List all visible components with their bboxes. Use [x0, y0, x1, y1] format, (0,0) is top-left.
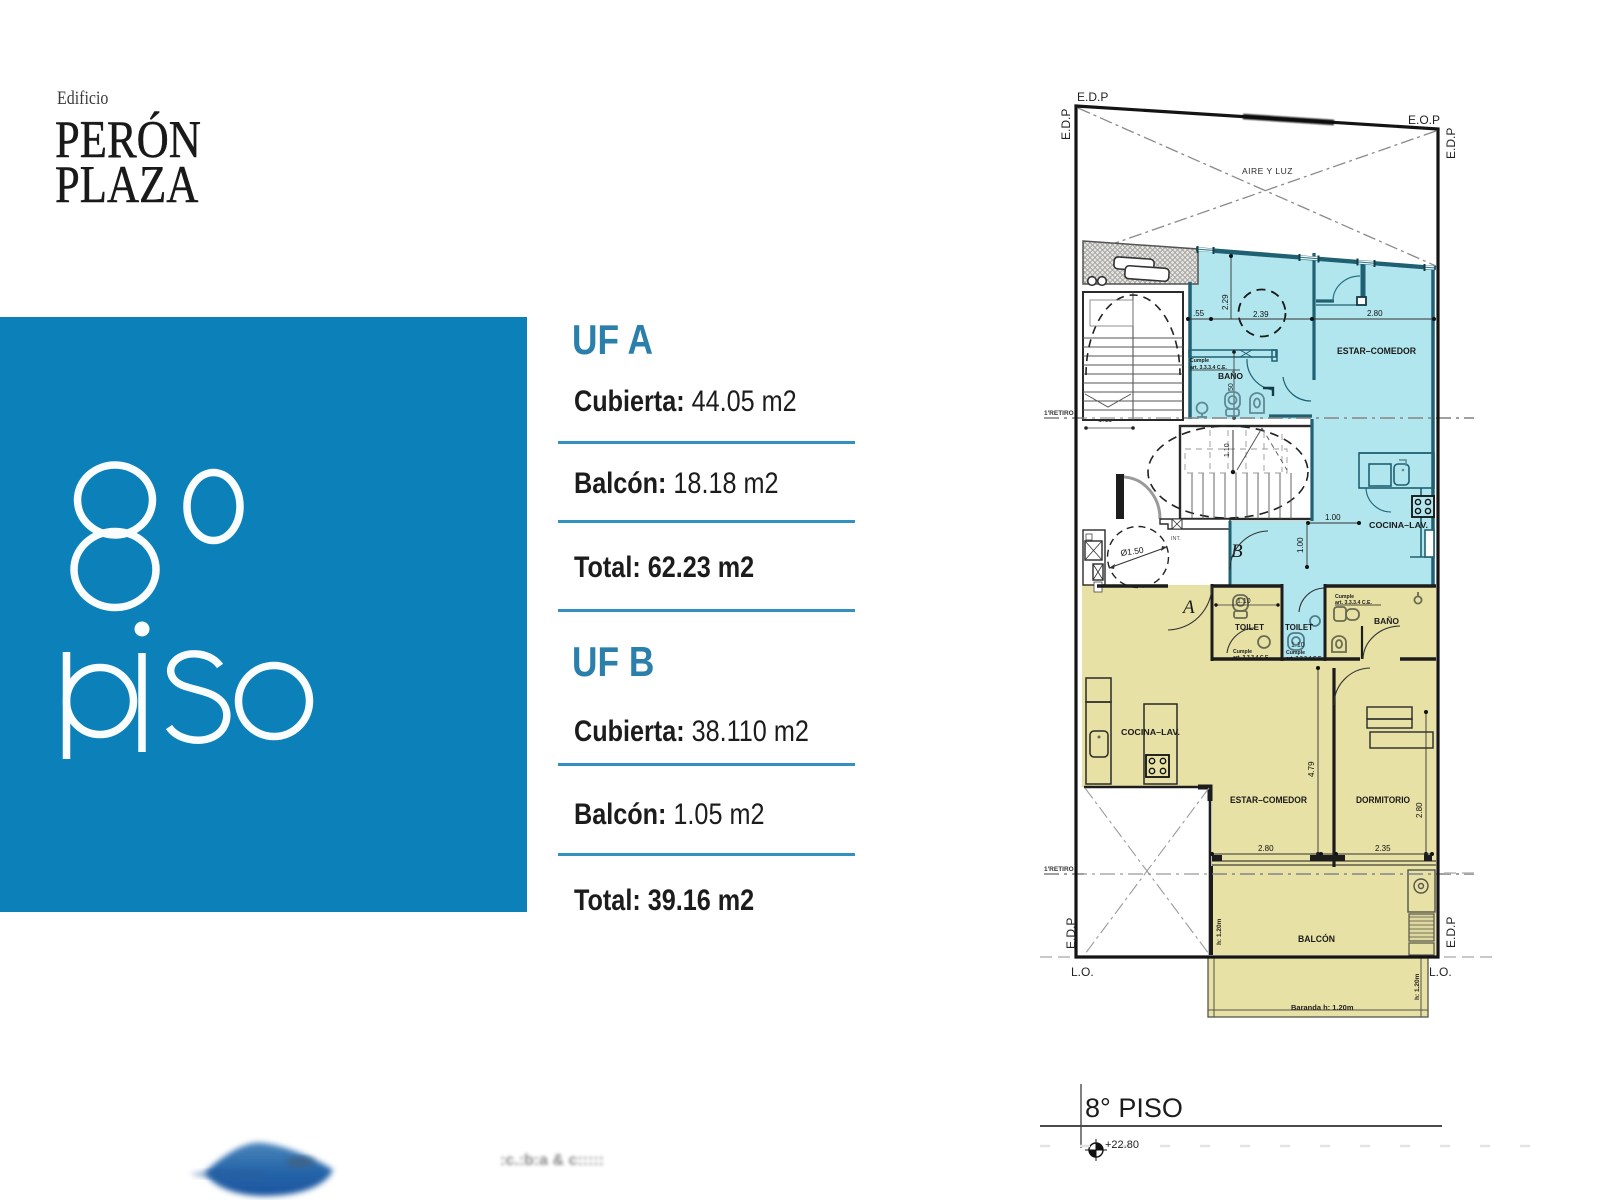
svg-text:+22.80: +22.80: [1105, 1139, 1139, 1151]
svg-text:E.D.P: E.D.P: [1059, 109, 1073, 140]
svg-text:BAÑO: BAÑO: [1218, 371, 1243, 381]
svg-text:2.80: 2.80: [1367, 309, 1383, 318]
svg-text:ESTAR–COMEDOR: ESTAR–COMEDOR: [1337, 346, 1416, 356]
svg-text:DORMITORIO: DORMITORIO: [1356, 795, 1410, 805]
svg-text:L.O.: L.O.: [1429, 965, 1452, 979]
svg-text:COCINA–LAV.: COCINA–LAV.: [1121, 727, 1180, 737]
svg-text:BALCÓN: BALCÓN: [1298, 933, 1335, 944]
svg-text:ESTAR–COMEDOR: ESTAR–COMEDOR: [1230, 795, 1307, 805]
svg-text:COCINA–LAV.: COCINA–LAV.: [1369, 520, 1428, 530]
svg-text:E.D.P: E.D.P: [1444, 128, 1458, 159]
svg-text:1.10: 1.10: [1224, 443, 1231, 457]
svg-text:L.O.: L.O.: [1071, 965, 1094, 979]
svg-text:h: 1.20m: h: 1.20m: [1216, 918, 1223, 945]
svg-text:E.D.P: E.D.P: [1064, 918, 1078, 949]
svg-text:B: B: [1231, 541, 1243, 562]
svg-text:art. 3.3.3.4 C.E.: art. 3.3.3.4 C.E.: [1286, 656, 1323, 662]
svg-text:1.00: 1.00: [1325, 513, 1341, 522]
svg-text:.55: .55: [1193, 309, 1205, 318]
svg-text:BAÑO: BAÑO: [1374, 616, 1399, 626]
svg-text:1'RETIRO: 1'RETIRO: [1044, 866, 1074, 873]
svg-text:8° PISO: 8° PISO: [1085, 1093, 1183, 1123]
svg-text:h: 1.20m: h: 1.20m: [1414, 973, 1421, 1000]
svg-text:art. 3.3.3.4 C.E.: art. 3.3.3.4 C.E.: [1233, 655, 1270, 661]
svg-text:AIRE Y LUZ: AIRE Y LUZ: [1242, 166, 1293, 176]
svg-text:TOILET: TOILET: [1285, 623, 1313, 632]
svg-text:1.10: 1.10: [1291, 642, 1305, 649]
svg-text:E.D.P: E.D.P: [1077, 90, 1108, 104]
svg-text:Baranda h: 1.20m: Baranda h: 1.20m: [1291, 1003, 1354, 1012]
svg-text:E.D.P: E.D.P: [1444, 917, 1458, 948]
svg-text:1.00: 1.00: [1296, 537, 1305, 553]
svg-text:4.79: 4.79: [1307, 761, 1316, 777]
svg-text:2.80: 2.80: [1258, 844, 1274, 853]
svg-text:INT.: INT.: [1171, 536, 1181, 542]
svg-text:E.O.P: E.O.P: [1408, 113, 1440, 127]
svg-text:2.29: 2.29: [1221, 294, 1230, 310]
svg-text:2.39: 2.39: [1253, 310, 1269, 319]
svg-text:TOILET: TOILET: [1235, 623, 1264, 632]
svg-text:1'RETIRO: 1'RETIRO: [1044, 410, 1074, 417]
svg-text:A: A: [1181, 597, 1195, 618]
svg-text:Cumple: Cumple: [1190, 358, 1209, 364]
svg-text:2.35: 2.35: [1375, 844, 1391, 853]
svg-text:2.80: 2.80: [1415, 802, 1424, 818]
svg-text:1.10: 1.10: [1237, 598, 1251, 605]
